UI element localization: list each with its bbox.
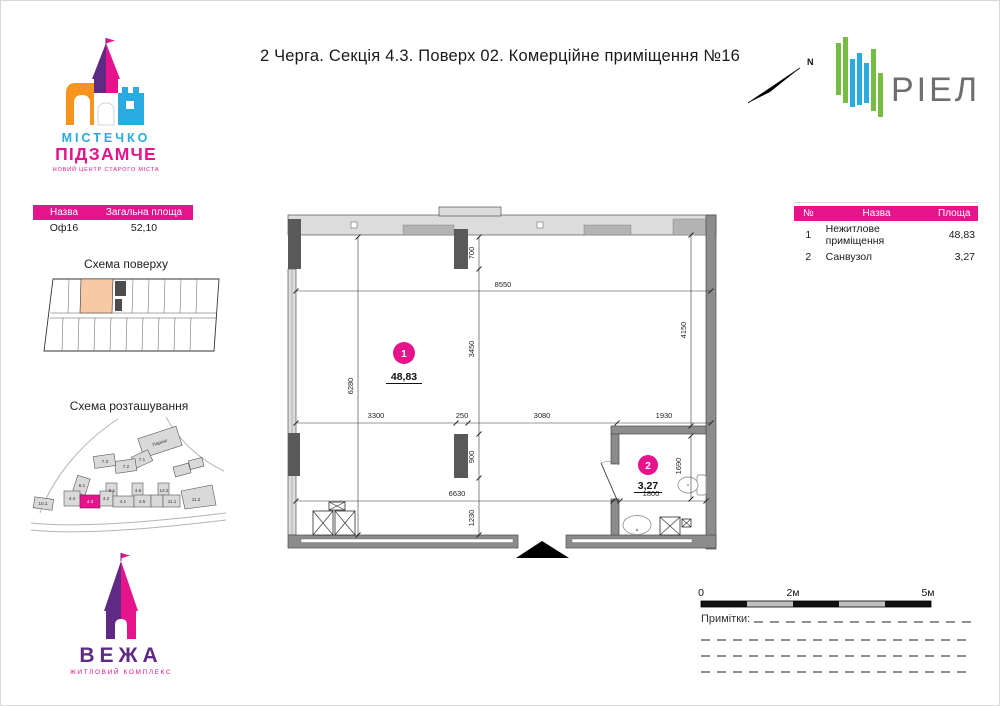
notes-line xyxy=(754,621,971,623)
room-area-cell: 48,83 xyxy=(931,221,979,249)
svg-text:4.3: 4.3 xyxy=(87,499,94,504)
svg-text:1: 1 xyxy=(401,349,407,360)
svg-text:11.2: 11.2 xyxy=(192,497,201,502)
toilet-fixture xyxy=(678,475,706,495)
svg-text:700: 700 xyxy=(467,247,476,260)
notes-line xyxy=(701,671,971,673)
svg-text:10.1: 10.1 xyxy=(39,501,48,506)
notes-line xyxy=(701,655,971,657)
notes-label: Примітки: xyxy=(701,613,750,625)
castle-icon xyxy=(66,38,144,125)
svg-text:11.1: 11.1 xyxy=(168,499,177,504)
vezha-tagline: ЖИТЛОВИЙ КОМПЛЕКС xyxy=(70,667,172,676)
svg-text:900: 900 xyxy=(467,451,476,464)
rooms-table: № Назва Площа 1 Нежитлове приміщення 48,… xyxy=(794,206,978,265)
unit-area-cell: 52,10 xyxy=(95,220,193,236)
svg-text:1690: 1690 xyxy=(674,458,683,475)
table-row: 1 Нежитлове приміщення 48,83 xyxy=(794,221,978,249)
svg-text:1930: 1930 xyxy=(656,411,673,420)
svg-text:4.6: 4.6 xyxy=(135,488,142,493)
svg-text:4.2: 4.2 xyxy=(103,496,110,501)
room-marker-1: 1 48,83 xyxy=(386,342,422,384)
room-num-cell: 1 xyxy=(794,221,823,249)
room-name-cell: Нежитлове приміщення xyxy=(823,221,931,249)
site-scheme-map: Паркінг 7.1 7.2 7.3 6.1 5.1 4.6 14.2 10.… xyxy=(26,413,231,545)
riel-wordmark: РІЕЛ xyxy=(891,71,980,109)
rooms-header-num: № xyxy=(794,206,823,221)
svg-text:7.1: 7.1 xyxy=(139,457,146,462)
site-roads xyxy=(31,417,226,532)
svg-text:3450: 3450 xyxy=(467,341,476,358)
highlighted-unit xyxy=(80,279,113,313)
main-floor-plan: 8550 3300 250 3080 1930 6630 1800 700 34… xyxy=(279,199,719,561)
north-arrow-icon: N xyxy=(748,57,814,103)
mistechko-wordmark-line1: МІСТЕЧКО xyxy=(62,131,151,145)
table-row: Оф16 52,10 xyxy=(33,220,193,236)
mistechko-wordmark-line2: ПІДЗАМЧЕ xyxy=(55,144,157,164)
svg-text:3080: 3080 xyxy=(534,411,551,420)
svg-text:5.1: 5.1 xyxy=(109,488,116,493)
svg-text:4.4: 4.4 xyxy=(69,496,76,501)
svg-text:6.1: 6.1 xyxy=(79,483,86,488)
header-right-logos: N РІЕЛ xyxy=(736,29,986,129)
north-label: N xyxy=(807,57,814,67)
room-marker-2: 2 3,27 xyxy=(634,455,662,493)
room-name-cell: Санвузол xyxy=(823,249,931,265)
vezha-logo: ВЕЖА ЖИТЛОВИЙ КОМПЛЕКС xyxy=(56,549,186,679)
site-scheme-title: Схема розташування xyxy=(29,399,229,413)
room-area-cell: 3,27 xyxy=(931,249,979,265)
unit-summary-table: Назва Загальна площа Оф16 52,10 xyxy=(33,205,193,236)
unit-table-header-area: Загальна площа xyxy=(95,205,193,220)
svg-text:4150: 4150 xyxy=(679,322,688,339)
scale-label-5m: 5м xyxy=(921,587,934,599)
door-leaf xyxy=(601,463,618,502)
tower-icon xyxy=(104,553,138,639)
svg-text:2: 2 xyxy=(645,461,651,472)
scale-label-0: 0 xyxy=(698,587,704,599)
scale-bar: 0 2м 5м xyxy=(694,585,979,613)
rooms-header-name: Назва xyxy=(823,206,931,221)
svg-text:6630: 6630 xyxy=(449,489,466,498)
svg-text:48,83: 48,83 xyxy=(391,371,417,383)
unit-table-header-name: Назва xyxy=(33,205,95,220)
dimension-labels: 8550 3300 250 3080 1930 6630 1800 700 34… xyxy=(346,247,688,527)
rooms-table-wrap: № Назва Площа 1 Нежитлове приміщення 48,… xyxy=(794,202,978,265)
mistechko-pidzamche-logo: МІСТЕЧКО ПІДЗАМЧЕ НОВИЙ ЦЕНТР СТАРОГО МІ… xyxy=(36,37,176,179)
floor-scheme-title: Схема поверху xyxy=(31,257,221,271)
sink-fixture xyxy=(623,516,651,535)
svg-text:6280: 6280 xyxy=(346,378,355,395)
mistechko-tagline: НОВИЙ ЦЕНТР СТАРОГО МІСТА xyxy=(53,165,160,173)
floor-scheme-thumbnail xyxy=(29,271,224,359)
scale-label-2m: 2м xyxy=(786,587,799,599)
svg-text:7.2: 7.2 xyxy=(123,464,130,469)
sheet: 2 Черга. Секція 4.3. Поверх 02. Комерцій… xyxy=(0,0,1000,706)
svg-text:7.3: 7.3 xyxy=(102,459,109,464)
svg-text:250: 250 xyxy=(456,411,469,420)
vezha-wordmark: ВЕЖА xyxy=(79,644,162,667)
riel-logo-icon xyxy=(836,37,883,117)
entrance-arrow xyxy=(516,541,569,558)
notes-line xyxy=(701,639,971,641)
table-row: 2 Санвузол 3,27 xyxy=(794,249,978,265)
rooms-header-area: Площа xyxy=(931,206,979,221)
notes-block: Примітки: xyxy=(701,613,971,673)
svg-text:3300: 3300 xyxy=(368,411,385,420)
room-num-cell: 2 xyxy=(794,249,823,265)
unit-name-cell: Оф16 xyxy=(33,220,95,236)
svg-text:8550: 8550 xyxy=(495,280,512,289)
svg-text:4.5: 4.5 xyxy=(139,499,146,504)
svg-text:1230: 1230 xyxy=(467,510,476,527)
svg-text:3,27: 3,27 xyxy=(638,480,659,492)
svg-text:14.2: 14.2 xyxy=(160,488,169,493)
svg-text:4.1: 4.1 xyxy=(120,499,127,504)
